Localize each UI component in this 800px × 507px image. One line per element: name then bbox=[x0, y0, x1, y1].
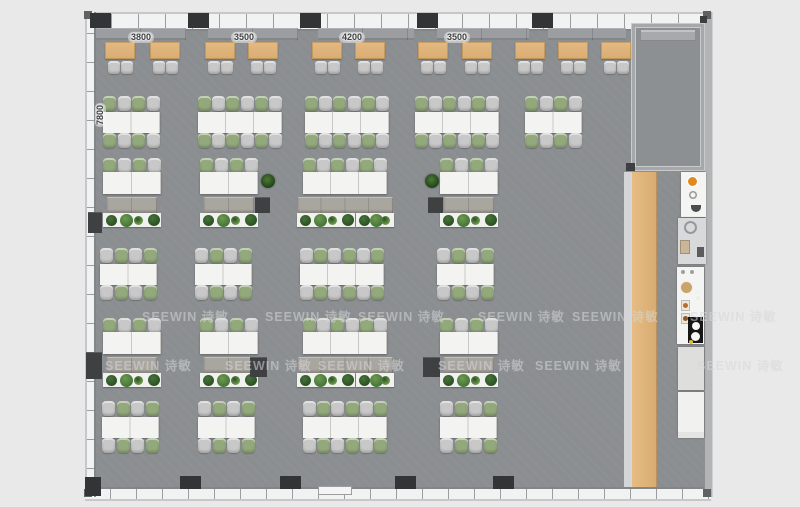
watermark: SEEWIN 诗敏 bbox=[690, 306, 777, 325]
watermark: SEEWIN 诗敏 bbox=[105, 355, 192, 374]
dimension-label: 3800 bbox=[128, 32, 154, 43]
watermark: SEEWIN 诗敏 bbox=[265, 306, 352, 325]
watermark: SEEWIN 诗敏 bbox=[358, 306, 445, 325]
annotation-layer: SEEWIN 诗敏SEEWIN 诗敏SEEWIN 诗敏SEEWIN 诗敏SEEW… bbox=[0, 0, 800, 507]
dimension-label: 3500 bbox=[231, 32, 257, 43]
watermark: SEEWIN 诗敏 bbox=[572, 306, 659, 325]
watermark: SEEWIN 诗敏 bbox=[478, 306, 565, 325]
watermark: SEEWIN 诗敏 bbox=[318, 355, 405, 374]
dimension-label: 4200 bbox=[339, 32, 365, 43]
dimension-label: 3500 bbox=[444, 32, 470, 43]
watermark: SEEWIN 诗敏 bbox=[438, 355, 525, 374]
floorplan-canvas: SEEWIN 诗敏SEEWIN 诗敏SEEWIN 诗敏SEEWIN 诗敏SEEW… bbox=[0, 0, 800, 507]
watermark: SEEWIN 诗敏 bbox=[142, 306, 229, 325]
watermark: SEEWIN 诗敏 bbox=[535, 355, 622, 374]
dimension-label: 7800 bbox=[95, 103, 106, 127]
watermark: SEEWIN 诗敏 bbox=[225, 355, 312, 374]
watermark: SEEWIN 诗敏 bbox=[697, 355, 784, 374]
